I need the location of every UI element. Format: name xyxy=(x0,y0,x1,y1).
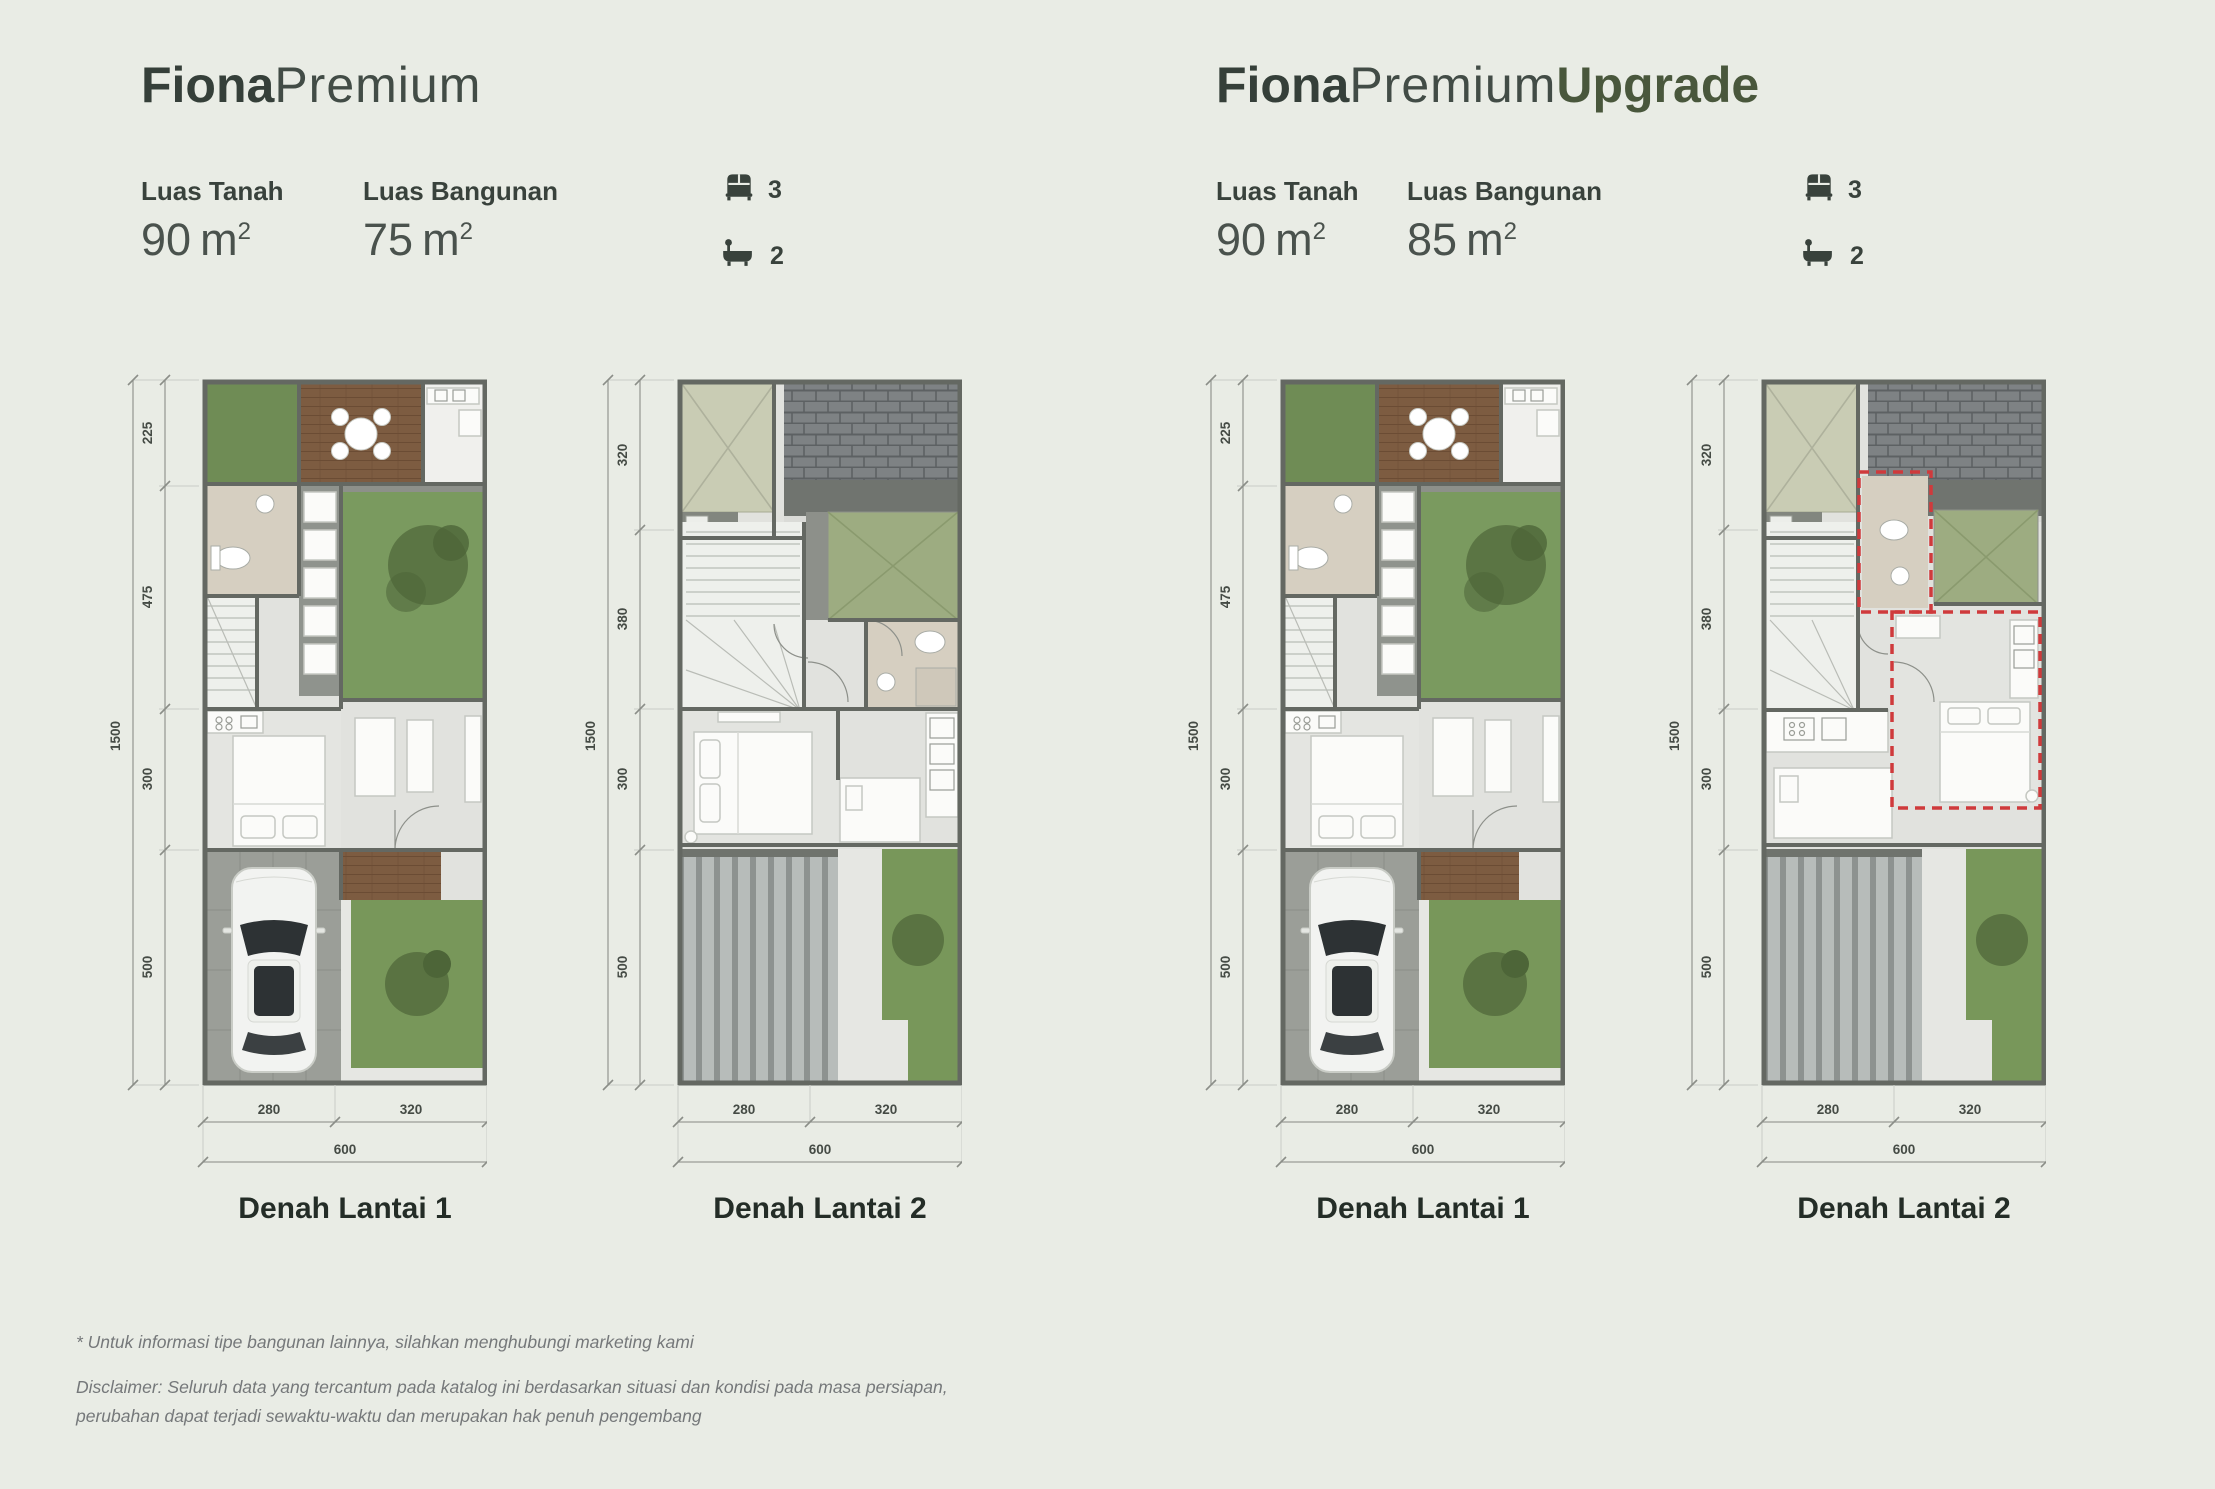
luas-tanah-sup: 2 xyxy=(1313,218,1326,245)
title-variant: Premium xyxy=(1349,57,1556,113)
floorplan-upgrade-lantai2: 1500 320 380 300 500 xyxy=(1666,374,2046,1184)
plan-drawing xyxy=(1281,380,1565,1085)
luas-bangunan-value: 85 m2 xyxy=(1407,214,1517,266)
dim-ruler-horizontal: 280 320 600 xyxy=(673,1085,962,1167)
bathtub-icon xyxy=(718,234,756,268)
luas-tanah-unit: m xyxy=(1275,214,1313,265)
caption-upgrade-lantai1: Denah Lantai 1 xyxy=(1281,1192,1565,1226)
dim-v3: 300 xyxy=(1699,768,1714,791)
caption-premium-lantai2: Denah Lantai 2 xyxy=(678,1192,962,1226)
dim-h2: 320 xyxy=(1959,1102,1982,1117)
luas-bangunan-num: 75 xyxy=(363,214,413,265)
footer-note: * Untuk informasi tipe bangunan lainnya,… xyxy=(76,1332,694,1353)
dim-h-total: 600 xyxy=(809,1142,832,1157)
car xyxy=(223,868,325,1072)
luas-tanah-label: Luas Tanah xyxy=(1216,176,1359,207)
dim-ruler-vertical: 1500 320 380 300 500 xyxy=(583,375,674,1090)
luas-bangunan-label: Luas Bangunan xyxy=(1407,176,1602,207)
dim-h1: 280 xyxy=(1336,1102,1359,1117)
dim-ruler-horizontal: 280 320 600 xyxy=(1276,1085,1565,1167)
luas-tanah-num: 90 xyxy=(141,214,191,265)
plan-drawing xyxy=(1762,380,2046,1085)
title-brand: Fiona xyxy=(1216,57,1349,113)
dim-v4: 500 xyxy=(615,956,630,979)
footer-disclaimer-line1: Disclaimer: Seluruh data yang tercantum … xyxy=(76,1377,948,1398)
dim-h2: 320 xyxy=(400,1102,423,1117)
dim-h-total: 600 xyxy=(1412,1142,1435,1157)
bedroom-count: 3 xyxy=(1848,176,1862,205)
dim-v3: 300 xyxy=(615,768,630,791)
luas-bangunan-unit: m xyxy=(1466,214,1504,265)
dim-v2: 380 xyxy=(1699,608,1714,631)
dim-ruler-horizontal: 280 320 600 xyxy=(1757,1085,2046,1167)
section-title-premium: FionaPremium xyxy=(141,58,481,113)
dim-v3: 300 xyxy=(140,768,155,791)
caption-upgrade-lantai2: Denah Lantai 2 xyxy=(1762,1192,2046,1226)
luas-tanah-label: Luas Tanah xyxy=(141,176,284,207)
bed-icon xyxy=(1800,168,1838,202)
dim-total-height: 1500 xyxy=(1186,721,1201,751)
title-brand: Fiona xyxy=(141,57,274,113)
dim-ruler-vertical: 1500 320 380 300 500 xyxy=(1667,375,1758,1090)
plan-drawing xyxy=(203,380,487,1085)
luas-tanah-num: 90 xyxy=(1216,214,1266,265)
dim-ruler-horizontal: 280 320 600 xyxy=(198,1085,487,1167)
dim-v1: 320 xyxy=(615,444,630,467)
dim-v2: 380 xyxy=(615,608,630,631)
title-variant: Premium xyxy=(274,57,481,113)
dim-v4: 500 xyxy=(1218,956,1233,979)
dim-v2: 475 xyxy=(1218,585,1233,608)
footer-disclaimer-line2: perubahan dapat terjadi sewaktu-waktu da… xyxy=(76,1406,702,1427)
bathroom-count: 2 xyxy=(770,242,784,271)
floorplan-premium-lantai1: 1500 225 475 300 500 xyxy=(107,374,487,1184)
bed-icon xyxy=(720,168,758,202)
dim-h1: 280 xyxy=(733,1102,756,1117)
dim-v1: 320 xyxy=(1699,444,1714,467)
dim-total-height: 1500 xyxy=(583,721,598,751)
floorplan-upgrade-lantai1: 1500 225 475 300 500 xyxy=(1185,374,1565,1184)
bedroom-count: 3 xyxy=(768,176,782,205)
section-title-premium-upgrade: FionaPremiumUpgrade xyxy=(1216,58,1759,113)
car xyxy=(1301,868,1403,1072)
dim-total-height: 1500 xyxy=(1667,721,1682,751)
dim-v1: 225 xyxy=(1218,421,1233,444)
luas-tanah-value: 90 m2 xyxy=(1216,214,1326,266)
luas-tanah-sup: 2 xyxy=(238,218,251,245)
dim-v3: 300 xyxy=(1218,768,1233,791)
bathtub-icon xyxy=(1798,234,1836,268)
plan-drawing xyxy=(678,380,962,1085)
luas-bangunan-label: Luas Bangunan xyxy=(363,176,558,207)
dim-h-total: 600 xyxy=(334,1142,357,1157)
floorplan-premium-lantai2: 1500 320 380 300 500 xyxy=(582,374,962,1184)
dim-h1: 280 xyxy=(1817,1102,1840,1117)
dim-h1: 280 xyxy=(258,1102,281,1117)
dim-h2: 320 xyxy=(1478,1102,1501,1117)
dim-v4: 500 xyxy=(1699,956,1714,979)
dim-v2: 475 xyxy=(140,585,155,608)
luas-tanah-value: 90 m2 xyxy=(141,214,251,266)
bathroom-count: 2 xyxy=(1850,242,1864,271)
luas-bangunan-sup: 2 xyxy=(1504,218,1517,245)
luas-bangunan-unit: m xyxy=(422,214,460,265)
dim-h-total: 600 xyxy=(1893,1142,1916,1157)
dim-v4: 500 xyxy=(140,956,155,979)
luas-bangunan-sup: 2 xyxy=(460,218,473,245)
brochure-page: FionaPremium Luas Tanah Luas Bangunan 90… xyxy=(0,0,2215,1489)
dim-total-height: 1500 xyxy=(108,721,123,751)
luas-bangunan-num: 85 xyxy=(1407,214,1457,265)
title-accent: Upgrade xyxy=(1556,57,1759,113)
dim-h2: 320 xyxy=(875,1102,898,1117)
dim-v1: 225 xyxy=(140,421,155,444)
dim-ruler-vertical: 1500 225 475 300 500 xyxy=(1186,375,1277,1090)
luas-bangunan-value: 75 m2 xyxy=(363,214,473,266)
caption-premium-lantai1: Denah Lantai 1 xyxy=(203,1192,487,1226)
dim-ruler-vertical: 1500 225 475 300 500 xyxy=(108,375,199,1090)
luas-tanah-unit: m xyxy=(200,214,238,265)
